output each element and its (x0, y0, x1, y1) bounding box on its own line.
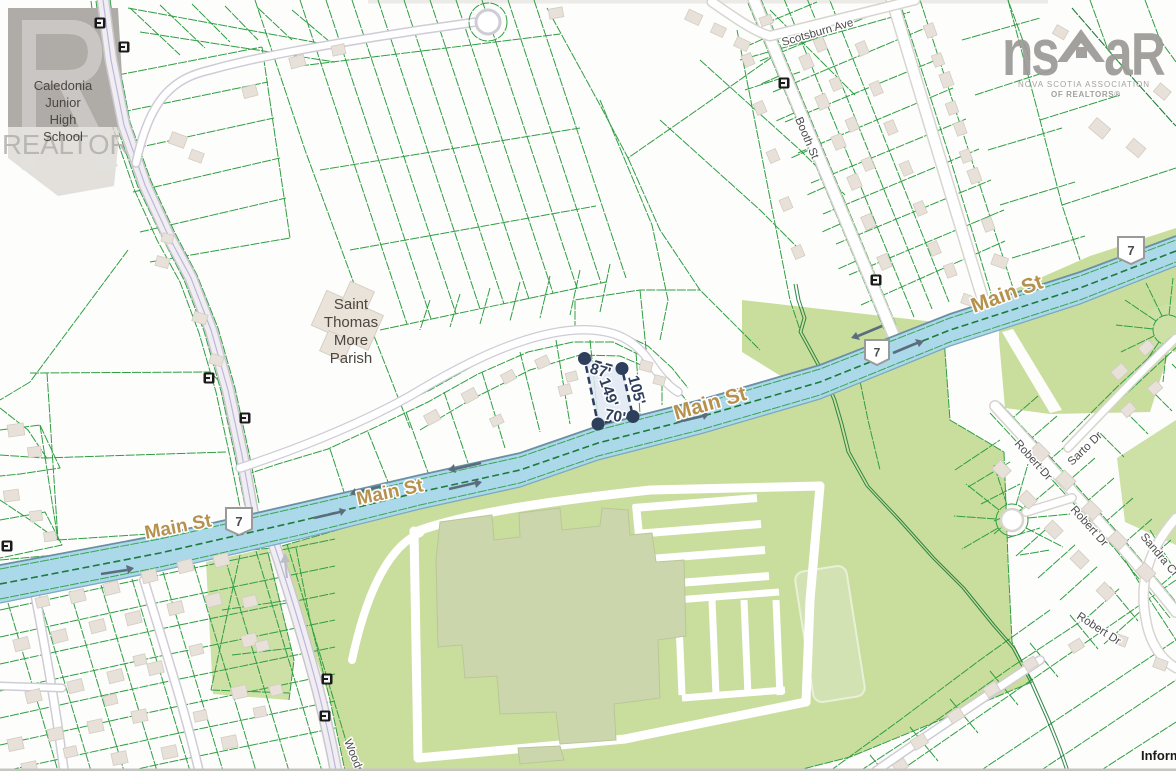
svg-text:7: 7 (874, 346, 881, 360)
svg-text:Caledonia: Caledonia (34, 78, 93, 93)
svg-text:High: High (50, 112, 77, 127)
svg-text:Thomas: Thomas (324, 314, 378, 331)
svg-text:OF REALTORS®: OF REALTORS® (1051, 90, 1121, 99)
svg-text:Parish: Parish (330, 350, 373, 367)
svg-text:More: More (334, 332, 368, 349)
svg-text:R: R (1131, 21, 1166, 88)
svg-text:School: School (43, 129, 83, 144)
svg-text:NOVA SCOTIA ASSOCIATION: NOVA SCOTIA ASSOCIATION (1018, 80, 1150, 89)
svg-text:Junior: Junior (45, 95, 81, 110)
svg-text:Saint: Saint (334, 296, 369, 313)
svg-text:a: a (1104, 15, 1134, 90)
svg-text:ns: ns (1002, 15, 1058, 90)
svg-text:Informat: Informat (1141, 748, 1176, 763)
svg-text:7: 7 (235, 514, 242, 529)
svg-text:7: 7 (1127, 243, 1134, 258)
